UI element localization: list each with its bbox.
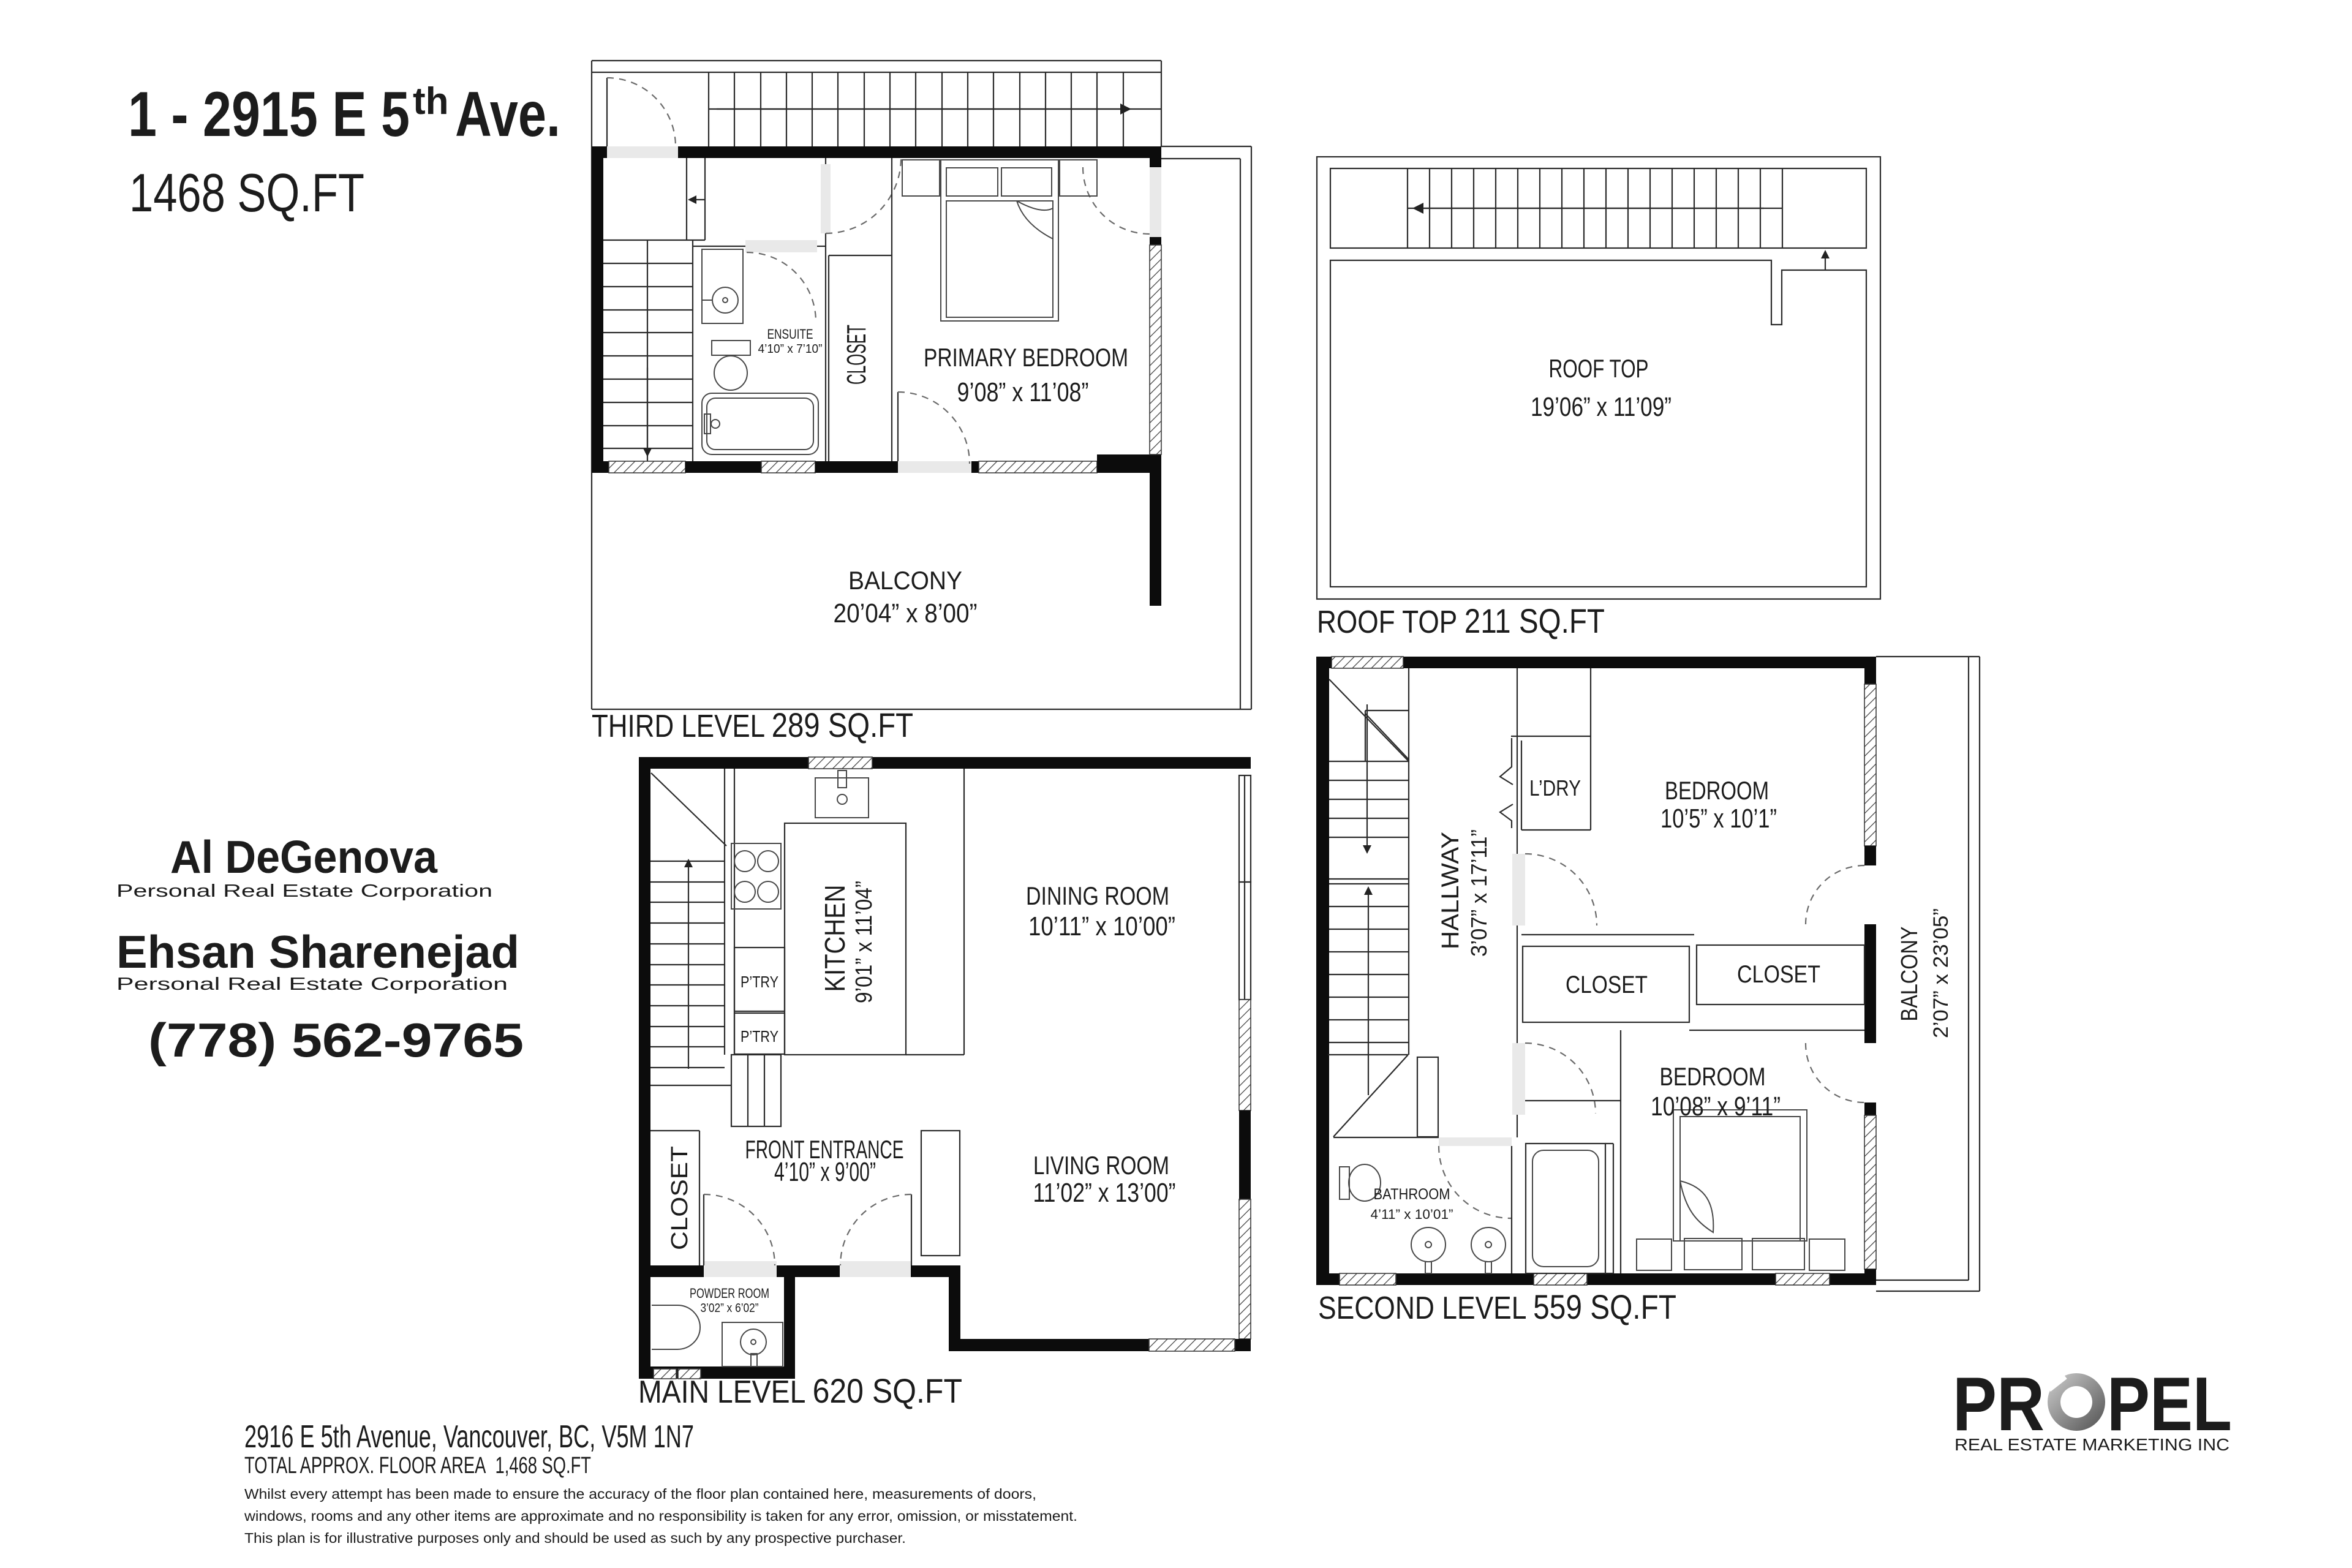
svg-text:4’11” x 10’01”: 4’11” x 10’01” bbox=[1371, 1207, 1453, 1222]
svg-text:THIRD LEVEL 289 SQ.FT: THIRD LEVEL 289 SQ.FT bbox=[592, 706, 913, 744]
svg-text:ENSUITE: ENSUITE bbox=[767, 326, 813, 342]
svg-text:4’10” x 7’10”: 4’10” x 7’10” bbox=[758, 342, 823, 356]
svg-text:Al DeGenova: Al DeGenova bbox=[170, 831, 438, 883]
svg-text:LIVING ROOM: LIVING ROOM bbox=[1033, 1151, 1169, 1180]
svg-text:ROOF TOP 211 SQ.FT: ROOF TOP 211 SQ.FT bbox=[1317, 601, 1605, 640]
svg-text:CLOSET: CLOSET bbox=[842, 325, 872, 385]
svg-text:(778) 562-9765: (778) 562-9765 bbox=[148, 1013, 524, 1067]
svg-text:2916 E 5th Avenue, Vancouver,: 2916 E 5th Avenue, Vancouver, BC, V5M 1N… bbox=[244, 1419, 694, 1455]
svg-text:11’02” x 13’00”: 11’02” x 13’00” bbox=[1033, 1178, 1176, 1208]
svg-text:CLOSET: CLOSET bbox=[1566, 971, 1648, 998]
svg-text:2’07” x 23’05”: 2’07” x 23’05” bbox=[1929, 908, 1953, 1038]
svg-text:PRIMARY BEDROOM: PRIMARY BEDROOM bbox=[924, 343, 1128, 372]
svg-text:P’TRY: P’TRY bbox=[741, 973, 778, 991]
svg-text:BEDROOM: BEDROOM bbox=[1660, 1062, 1766, 1091]
svg-text:Ehsan Sharenejad: Ehsan Sharenejad bbox=[116, 926, 519, 978]
svg-text:TOTAL APPROX. FLOOR AREA 1,46: TOTAL APPROX. FLOOR AREA 1,468 SQ.FT bbox=[244, 1453, 591, 1479]
svg-text:MAIN LEVEL 620 SQ.FT: MAIN LEVEL 620 SQ.FT bbox=[638, 1371, 962, 1410]
svg-text:Ave.: Ave. bbox=[455, 79, 560, 150]
svg-text:1 - 2915 E 5: 1 - 2915 E 5 bbox=[128, 79, 410, 150]
svg-text:CLOSET: CLOSET bbox=[1737, 961, 1820, 988]
svg-text:1468 SQ.FT: 1468 SQ.FT bbox=[129, 162, 364, 223]
svg-text:3’07” x 17’11”: 3’07” x 17’11” bbox=[1466, 829, 1491, 957]
svg-text:10’08” x 9’11”: 10’08” x 9’11” bbox=[1651, 1091, 1781, 1121]
svg-text:L’DRY: L’DRY bbox=[1529, 775, 1581, 801]
svg-text:10’5” x 10’1”: 10’5” x 10’1” bbox=[1660, 804, 1777, 834]
svg-text:CLOSET: CLOSET bbox=[667, 1146, 693, 1250]
svg-text:4’10” x 9’00”: 4’10” x 9’00” bbox=[774, 1157, 876, 1187]
svg-text:P’TRY: P’TRY bbox=[741, 1027, 778, 1046]
svg-text:This plan is for illustrative: This plan is for illustrative purposes o… bbox=[244, 1530, 906, 1546]
svg-text:9’08” x 11’08”: 9’08” x 11’08” bbox=[957, 377, 1089, 407]
svg-text:POWDER ROOM: POWDER ROOM bbox=[690, 1286, 769, 1301]
svg-text:3’02” x 6’02”: 3’02” x 6’02” bbox=[701, 1302, 759, 1315]
svg-text:th: th bbox=[413, 80, 449, 123]
svg-text:REAL ESTATE MARKETING INC: REAL ESTATE MARKETING INC bbox=[1954, 1435, 2229, 1454]
svg-text:Personal Real Estate Corporati: Personal Real Estate Corporation bbox=[116, 974, 508, 994]
svg-text:SECOND LEVEL 559 SQ.FT: SECOND LEVEL 559 SQ.FT bbox=[1318, 1287, 1676, 1326]
svg-text:DINING ROOM: DINING ROOM bbox=[1026, 881, 1169, 910]
svg-text:BATHROOM: BATHROOM bbox=[1374, 1186, 1450, 1203]
svg-text:Whilst every attempt has been: Whilst every attempt has been made to en… bbox=[244, 1486, 1036, 1502]
svg-text:BALCONY: BALCONY bbox=[1897, 927, 1923, 1022]
svg-text:Personal Real Estate Corporati: Personal Real Estate Corporation bbox=[116, 881, 492, 901]
svg-text:PR: PR bbox=[1953, 1362, 2045, 1447]
svg-text:10’11” x 10’00”: 10’11” x 10’00” bbox=[1028, 911, 1175, 941]
svg-text:BEDROOM: BEDROOM bbox=[1665, 776, 1769, 805]
svg-text:windows, rooms and any other i: windows, rooms and any other items are a… bbox=[244, 1508, 1077, 1524]
svg-text:19’06” x 11’09”: 19’06” x 11’09” bbox=[1531, 392, 1672, 422]
svg-text:9’01” x 11’04”: 9’01” x 11’04” bbox=[851, 881, 877, 1003]
svg-text:BALCONY: BALCONY bbox=[848, 566, 962, 595]
svg-text:KITCHEN: KITCHEN bbox=[819, 885, 851, 992]
svg-text:HALLWAY: HALLWAY bbox=[1437, 832, 1464, 949]
svg-text:20’04” x 8’00”: 20’04” x 8’00” bbox=[834, 598, 978, 628]
svg-text:ROOF TOP: ROOF TOP bbox=[1549, 354, 1649, 383]
svg-text:PEL: PEL bbox=[2107, 1362, 2232, 1447]
